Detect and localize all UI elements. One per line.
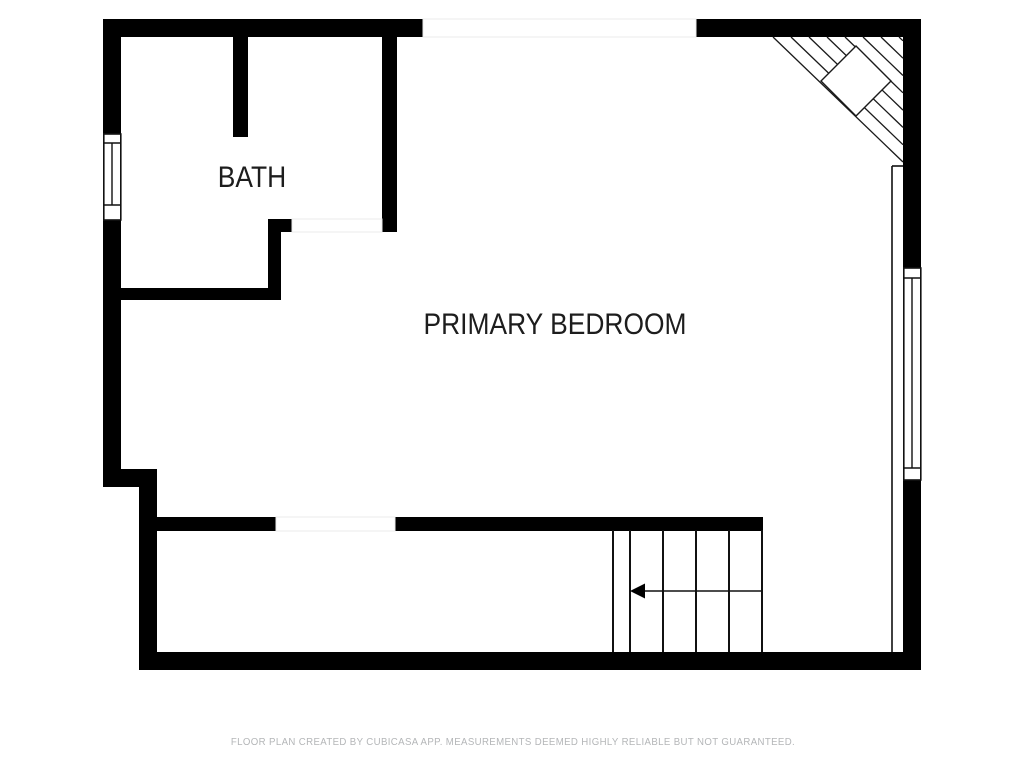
wall-interior-right [395,517,763,531]
window-right [903,268,921,480]
wall-bottom [139,652,921,670]
opening-top-wall [423,19,696,37]
hatch-hypotenuse [773,37,903,162]
room-label-primary-bedroom: PRIMARY BEDROOM [423,306,686,340]
wall-openings [276,19,696,531]
wall-right-upper [903,19,921,268]
wall-bath-bottom [121,288,280,300]
wall-left-lower [139,469,157,670]
wall-left-mid [103,220,121,487]
corner-hatch-icon [773,37,903,162]
floor-plan-page: BATH PRIMARY BEDROOM FLOOR PLAN CREATED … [0,0,1024,768]
wall-interior-left [157,517,276,531]
floor-plan-drawing: BATH PRIMARY BEDROOM FLOOR PLAN CREATED … [0,0,1024,768]
wall-left-upper [103,19,121,134]
staircase [613,530,762,652]
wall-bath-partition [233,37,248,137]
stair-opening-edge [892,166,903,652]
room-label-bath: BATH [218,159,286,193]
wall-right-lower [903,480,921,670]
wall-bath-notch-v [268,219,281,300]
wall-top-left [103,19,423,37]
walls [103,19,921,670]
footer-disclaimer: FLOOR PLAN CREATED BY CUBICASA APP. MEAS… [231,737,795,748]
wall-top-right [696,19,921,37]
opening-bath-door [292,219,382,232]
opening-interior-wall [276,517,395,531]
window-left [103,134,121,220]
wall-bath-right [382,37,397,232]
